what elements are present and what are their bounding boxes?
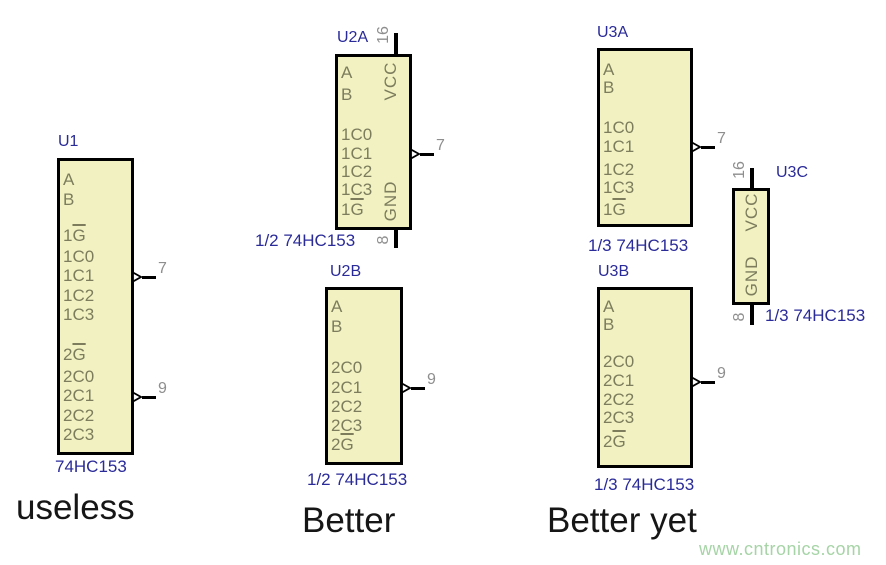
pin-label-overbar: G	[340, 435, 353, 454]
pin-label: 1C0	[341, 125, 372, 145]
pin-label: 1C2	[341, 162, 372, 182]
pin-label: 1G	[341, 200, 364, 220]
pin-label-overbar: G	[350, 200, 363, 219]
pin-arrow-icon	[691, 376, 701, 388]
pin-label: 1C1	[603, 137, 634, 157]
pin-number: 7	[158, 260, 167, 278]
chip-part-label: 1/3 74HC153	[588, 236, 688, 256]
pin-label-overbar: G	[72, 345, 85, 364]
power-label: GND	[381, 156, 401, 246]
pin-label: 1G	[603, 200, 626, 220]
chip-part-label: 74HC153	[55, 457, 127, 477]
pin-number: 9	[158, 380, 167, 398]
pin-row-right: 9	[132, 387, 169, 407]
pin-label: 1C3	[63, 305, 94, 325]
chip-ref: U1	[58, 133, 78, 151]
pin-label: B	[63, 190, 74, 210]
power-label: GND	[742, 231, 762, 321]
pin-label: 2G	[331, 435, 354, 455]
pin-wire	[701, 146, 715, 149]
pin-row-right: 7	[410, 144, 447, 164]
pin-label: 1C2	[63, 286, 94, 306]
pin-wire	[142, 276, 156, 279]
pin-wire	[420, 153, 434, 156]
pin-label: 2C0	[603, 352, 634, 372]
pin-label: A	[603, 297, 614, 317]
pin-number: 9	[717, 365, 726, 383]
pin-label: 1C1	[341, 144, 372, 164]
pin-label: 2C2	[331, 397, 362, 417]
pin-number: 9	[427, 371, 436, 389]
pin-label: 2C0	[331, 358, 362, 378]
pin-label: A	[331, 297, 342, 317]
pin-label: 1G	[63, 226, 86, 246]
pin-label-overbar: G	[612, 200, 625, 219]
pin-arrow-icon	[401, 382, 411, 394]
pin-arrow-icon	[691, 141, 701, 153]
pin-number: 7	[717, 130, 726, 148]
pin-arrow-icon	[132, 271, 142, 283]
pin-label: 2G	[63, 345, 86, 365]
pin-label: 2C1	[63, 386, 94, 406]
pin-label: 1C0	[603, 118, 634, 138]
watermark: www.cntronics.com	[699, 539, 862, 560]
caption-better-yet: Better yet	[547, 501, 697, 541]
pin-arrow-icon	[410, 148, 420, 160]
pin-label: A	[603, 60, 614, 80]
chip-part-label: 1/2 74HC153	[255, 231, 355, 251]
chip-part-label: 1/2 74HC153	[307, 470, 407, 490]
pin-label: A	[63, 170, 74, 190]
pin-label-overbar: G	[72, 226, 85, 245]
pin-row-right: 7	[132, 267, 169, 287]
pin-label: 2C0	[63, 367, 94, 387]
pin-row-right: 7	[691, 137, 728, 157]
pin-row-right: 9	[691, 372, 728, 392]
pin-wire	[701, 381, 715, 384]
chip-ref: U3A	[597, 24, 628, 42]
pin-label: 1C3	[341, 180, 372, 200]
pin-wire	[142, 396, 156, 399]
power-label: VCC	[381, 36, 401, 126]
pin-label: 2G	[603, 432, 626, 452]
pin-label: 2C1	[603, 371, 634, 391]
pin-label: 1C0	[63, 247, 94, 267]
pin-label: 1C3	[603, 178, 634, 198]
pin-label: 1C1	[63, 266, 94, 286]
pin-label: A	[341, 63, 352, 83]
pin-label: B	[341, 85, 352, 105]
pin-label: B	[603, 78, 614, 98]
chip-ref: U2A	[337, 29, 368, 47]
pin-label: 2C3	[603, 408, 634, 428]
caption-better: Better	[302, 501, 395, 541]
pin-label: 2C3	[63, 425, 94, 445]
pin-label: 2C2	[63, 406, 94, 426]
caption-useless: useless	[16, 488, 135, 528]
pin-label: 2C1	[331, 378, 362, 398]
pin-number: 7	[436, 137, 445, 155]
pin-label: 2C2	[603, 390, 634, 410]
chip-ref: U3C	[776, 164, 808, 182]
pin-label: B	[603, 315, 614, 335]
pin-label: 1C2	[603, 160, 634, 180]
pin-label: 2C3	[331, 416, 362, 436]
schematic-canvas: U174HC15314A2B11G61C051C141C231C3152G102…	[0, 0, 886, 565]
chip-part-label: 1/3 74HC153	[765, 306, 865, 326]
pin-row-right: 9	[401, 378, 438, 398]
pin-arrow-icon	[132, 391, 142, 403]
chip-part-label: 1/3 74HC153	[594, 475, 694, 495]
pin-label-overbar: G	[612, 432, 625, 451]
chip-ref: U3B	[598, 263, 629, 281]
chip-ref: U2B	[330, 263, 361, 281]
pin-label: B	[331, 317, 342, 337]
pin-wire	[411, 387, 425, 390]
